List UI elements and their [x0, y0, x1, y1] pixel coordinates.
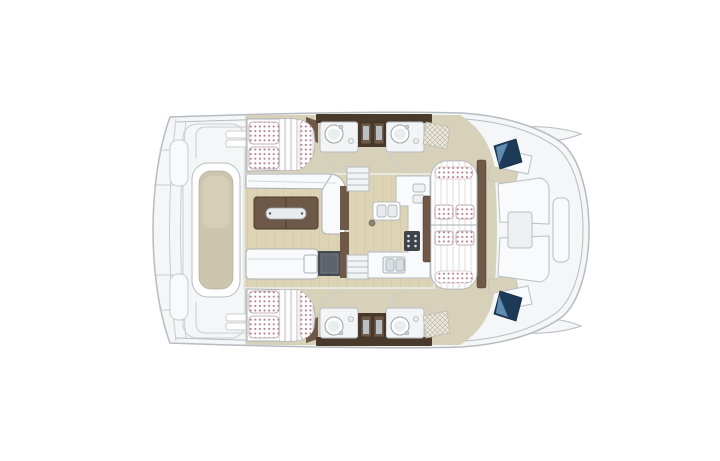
drain-fitting: [414, 317, 419, 322]
refrigerator-lid: [321, 254, 338, 273]
faucet: [405, 331, 409, 335]
stern-seat-upper: [170, 140, 188, 186]
wardrobe-door-inset: [363, 126, 369, 140]
aft-platform-table-highlight: [203, 176, 229, 228]
bow-sunpad-side: [553, 198, 569, 262]
faucet: [339, 125, 343, 129]
cockpit-table-right: [477, 160, 486, 288]
counter-item: [413, 184, 425, 192]
hatch-panel: [388, 205, 397, 217]
screenshot-canvas: [0, 0, 720, 461]
galley-stove: [404, 231, 420, 251]
wardrobe-door-inset: [376, 126, 382, 140]
drain-fitting: [414, 139, 419, 144]
drain-fitting: [349, 317, 354, 322]
side-counter: [304, 255, 317, 273]
floor-drain: [369, 220, 375, 226]
drain-fitting: [349, 139, 354, 144]
pillow: [249, 316, 279, 338]
lounge-pillow: [456, 205, 474, 219]
washbasin-bowl: [328, 321, 340, 332]
washbasin-bowl: [394, 321, 406, 332]
stairwell-wall: [340, 186, 349, 230]
forward-cockpit-lounge: [423, 160, 486, 289]
bow-sunpad-center: [508, 212, 532, 248]
pillow: [249, 147, 279, 169]
tread-patch-lower: [423, 311, 450, 338]
tread-patch-upper: [423, 122, 450, 149]
centerpiece-dot: [269, 212, 271, 214]
pillow: [249, 122, 279, 144]
centerpiece-dot: [301, 212, 303, 214]
wardrobe-door-inset: [376, 320, 382, 334]
bench-dot-band: [435, 167, 473, 179]
wardrobe-door-inset: [363, 320, 369, 334]
sink-basin: [386, 259, 394, 271]
mattress-stripes: [279, 119, 302, 173]
stern-seat-lower: [170, 274, 188, 320]
catamaran-floor-plan: [0, 0, 720, 461]
lounge-pillow: [435, 205, 453, 219]
salon-table-centerpiece: [266, 208, 306, 219]
mattress-stripes: [279, 287, 302, 341]
sink-basin: [396, 259, 404, 271]
lounge-pillow: [456, 231, 474, 245]
faucet: [405, 125, 409, 129]
cockpit-table-left: [423, 196, 431, 262]
lounge-pillow: [435, 231, 453, 245]
bench-dot-band: [435, 271, 473, 283]
washbasin-bowl: [394, 129, 406, 140]
pillow: [249, 291, 279, 313]
faucet: [339, 331, 343, 335]
washbasin-bowl: [328, 129, 340, 140]
hatch-panel: [377, 205, 386, 217]
